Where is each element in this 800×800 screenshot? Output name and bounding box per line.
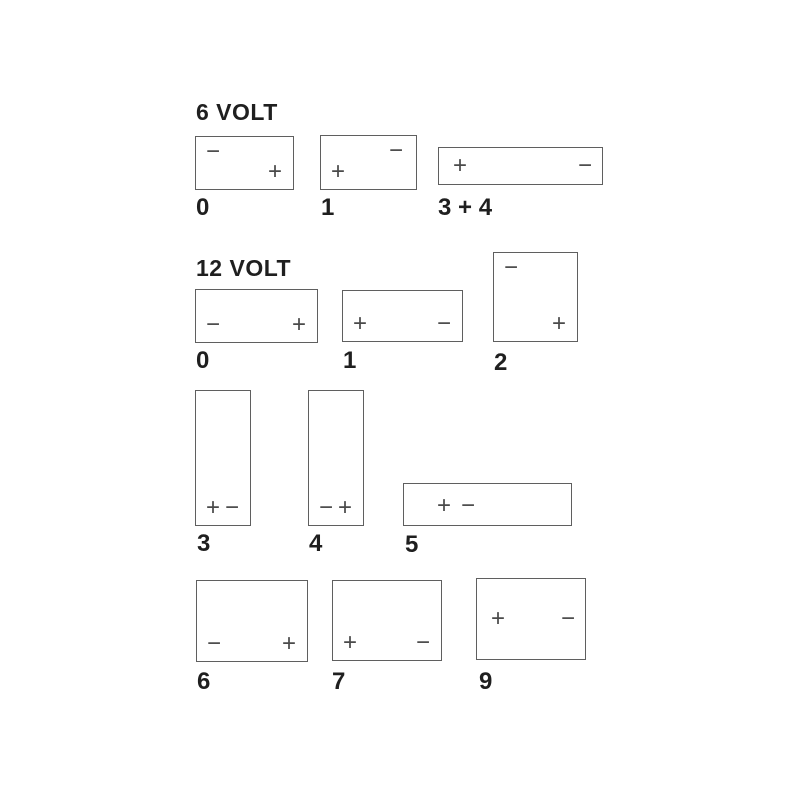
battery-label: 6 (197, 668, 210, 696)
battery-box-12v-type-4: − + (308, 390, 364, 526)
section-title-6-volt: 6 VOLT (196, 99, 278, 126)
negative-terminal: − (504, 256, 518, 280)
battery-label: 3 (197, 530, 210, 558)
positive-terminal: + (453, 154, 467, 178)
positive-terminal: + (292, 313, 306, 337)
battery-terminal-layout-diagram: 6 VOLT − + 0 − + 1 + − 3 + 4 12 VOLT − +… (0, 0, 800, 800)
negative-terminal: − (389, 139, 403, 163)
battery-label: 0 (196, 194, 209, 222)
battery-box-12v-type-6: − + (196, 580, 308, 662)
battery-box-12v-type-3: + − (195, 390, 251, 526)
battery-box-12v-type-2: − + (493, 252, 578, 342)
battery-label: 4 (309, 530, 322, 558)
positive-terminal: + (338, 496, 352, 520)
battery-label: 2 (494, 349, 507, 377)
positive-terminal: + (282, 632, 296, 656)
battery-box-12v-type-9: + − (476, 578, 586, 660)
section-title-12-volt: 12 VOLT (196, 255, 291, 282)
battery-box-12v-type-0: − + (195, 289, 318, 343)
negative-terminal: − (206, 313, 220, 337)
battery-label: 1 (321, 194, 334, 222)
battery-box-12v-type-7: + − (332, 580, 442, 661)
negative-terminal: − (319, 496, 333, 520)
negative-terminal: − (561, 607, 575, 631)
battery-label: 1 (343, 347, 356, 375)
positive-terminal: + (353, 312, 367, 336)
negative-terminal: − (225, 496, 239, 520)
negative-terminal: − (437, 312, 451, 336)
positive-terminal: + (552, 312, 566, 336)
positive-terminal: + (437, 493, 451, 517)
positive-terminal: + (206, 496, 220, 520)
battery-box-6v-type-1: − + (320, 135, 417, 190)
negative-terminal: − (207, 632, 221, 656)
battery-label: 5 (405, 531, 418, 559)
negative-terminal: − (461, 493, 475, 517)
battery-label: 3 + 4 (438, 194, 492, 222)
battery-label: 7 (332, 668, 345, 696)
battery-box-12v-type-1: + − (342, 290, 463, 342)
battery-box-12v-type-5: + − (403, 483, 572, 526)
battery-label: 0 (196, 347, 209, 375)
negative-terminal: − (578, 154, 592, 178)
battery-box-6v-type-0: − + (195, 136, 294, 190)
positive-terminal: + (343, 631, 357, 655)
battery-label: 9 (479, 668, 492, 696)
negative-terminal: − (416, 631, 430, 655)
positive-terminal: + (491, 607, 505, 631)
negative-terminal: − (206, 140, 220, 164)
positive-terminal: + (331, 160, 345, 184)
battery-box-6v-type-3-4: + − (438, 147, 603, 185)
positive-terminal: + (268, 160, 282, 184)
